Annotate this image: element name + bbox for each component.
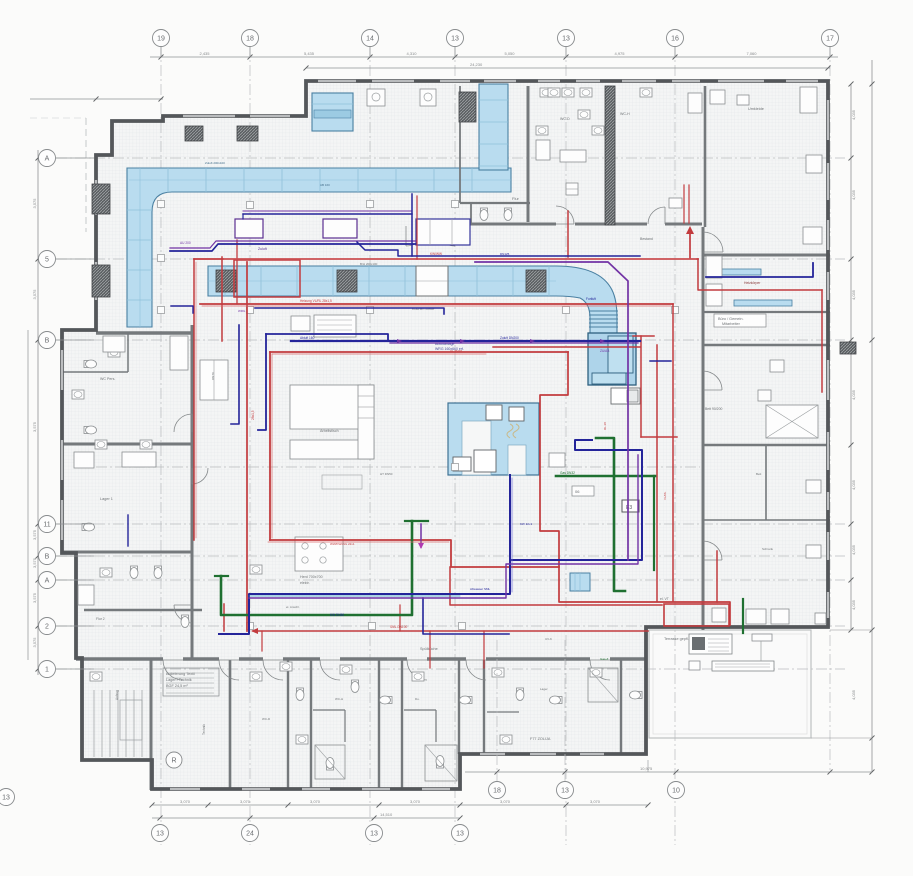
svg-text:5: 5 [45, 256, 49, 263]
svg-text:5,050: 5,050 [505, 51, 516, 56]
svg-text:4,035: 4,035 [851, 599, 856, 610]
svg-text:4,035: 4,035 [851, 289, 856, 300]
svg-text:HT DN50: HT DN50 [380, 472, 393, 476]
svg-text:2: 2 [45, 623, 49, 630]
svg-text:KW DN50: KW DN50 [330, 613, 344, 617]
svg-text:Umkleide: Umkleide [748, 107, 764, 111]
svg-text:4,310: 4,310 [407, 51, 418, 56]
svg-text:Zuluft: Zuluft [258, 247, 267, 251]
svg-text:F90: F90 [610, 202, 616, 206]
svg-text:WRG: WRG [238, 309, 246, 313]
svg-text:3,070: 3,070 [310, 799, 321, 804]
svg-text:Heizkörper: Heizkörper [744, 281, 761, 285]
svg-text:4,035: 4,035 [851, 389, 856, 400]
svg-text:3,575: 3,575 [32, 421, 37, 432]
svg-text:Heizung VL/RL 28x1,5: Heizung VL/RL 28x1,5 [300, 299, 332, 303]
svg-text:Bett 90/200: Bett 90/200 [705, 407, 722, 411]
svg-text:B: B [45, 337, 50, 344]
svg-text:4,035: 4,035 [851, 109, 856, 120]
svg-text:A: A [45, 155, 50, 162]
svg-text:WW/KW/Zirk 22x1: WW/KW/Zirk 22x1 [330, 542, 355, 546]
svg-text:4,035: 4,035 [851, 689, 856, 700]
svg-text:Terrasse gepfl.: Terrasse gepfl. [664, 637, 689, 641]
svg-text:Aufzug: Aufzug [115, 690, 119, 700]
svg-text:AB 160: AB 160 [320, 183, 330, 187]
svg-text:VL 35/28: VL 35/28 [450, 349, 462, 353]
svg-text:VL/RL: VL/RL [663, 491, 667, 500]
svg-text:13: 13 [370, 830, 378, 837]
svg-text:SML DN100: SML DN100 [390, 625, 407, 629]
svg-text:3,575: 3,575 [32, 289, 37, 300]
svg-text:el. VT: el. VT [660, 597, 669, 601]
svg-text:24,230: 24,230 [470, 62, 483, 67]
svg-text:1: 1 [45, 666, 49, 673]
svg-text:Du.: Du. [415, 697, 420, 701]
svg-text:16: 16 [671, 35, 679, 42]
svg-text:Schrank: Schrank [762, 547, 774, 551]
svg-text:17: 17 [826, 35, 834, 42]
svg-text:E3: E3 [626, 505, 632, 511]
svg-text:3,575: 3,575 [32, 557, 37, 568]
svg-text:Arbeitstisch: Arbeitstisch [320, 429, 339, 433]
svg-text:Zuluft 200x100: Zuluft 200x100 [205, 161, 225, 165]
svg-text:2,435: 2,435 [200, 51, 211, 56]
svg-text:WC Pers.: WC Pers. [100, 377, 115, 381]
svg-text:4,975: 4,975 [615, 51, 626, 56]
svg-text:elektr.: elektr. [300, 581, 310, 585]
svg-text:AU 200: AU 200 [180, 241, 191, 245]
svg-text:Gas-Z: Gas-Z [600, 657, 609, 661]
svg-text:WC-H: WC-H [620, 112, 630, 116]
svg-text:A: A [45, 577, 50, 584]
svg-text:14: 14 [366, 35, 374, 42]
svg-text:Lager / Technik: Lager / Technik [166, 678, 192, 682]
svg-text:18: 18 [246, 35, 254, 42]
svg-text:Anlieferung Textil: Anlieferung Textil [166, 672, 195, 676]
svg-text:Gas DN32: Gas DN32 [560, 471, 575, 475]
svg-text:UV-K: UV-K [545, 637, 552, 641]
svg-text:3,070: 3,070 [410, 799, 421, 804]
svg-text:DN70: DN70 [211, 372, 215, 380]
svg-text:13: 13 [562, 35, 570, 42]
svg-text:Bestand: Bestand [640, 237, 653, 241]
svg-text:4,035: 4,035 [851, 544, 856, 555]
svg-text:Zuluft DN200: Zuluft DN200 [500, 336, 519, 340]
svg-text:Flur 2: Flur 2 [96, 617, 105, 621]
svg-text:KW/WW: KW/WW [430, 252, 442, 256]
svg-text:el. Anschl.: el. Anschl. [286, 605, 300, 609]
svg-text:5,435: 5,435 [304, 51, 315, 56]
svg-text:B: B [45, 553, 50, 560]
svg-text:19: 19 [157, 35, 165, 42]
svg-text:13: 13 [2, 794, 10, 801]
svg-text:Spülküche: Spülküche [420, 647, 438, 651]
svg-text:F77 ZOLIJA: F77 ZOLIJA [530, 737, 551, 741]
svg-text:KW 22x1: KW 22x1 [520, 522, 533, 526]
svg-text:11: 11 [43, 521, 50, 528]
svg-text:3,070: 3,070 [500, 799, 511, 804]
svg-text:DN125: DN125 [500, 252, 510, 256]
svg-text:13: 13 [561, 787, 569, 794]
svg-text:Abluft 160: Abluft 160 [300, 336, 315, 340]
svg-text:10: 10 [672, 787, 680, 794]
svg-text:RL 28: RL 28 [603, 422, 607, 430]
svg-text:28x1,5: 28x1,5 [251, 410, 255, 420]
svg-text:06: 06 [575, 489, 580, 494]
svg-text:Abwasser SML: Abwasser SML [470, 587, 491, 591]
svg-text:3,575: 3,575 [32, 592, 37, 603]
svg-text:Herd 700x700: Herd 700x700 [300, 575, 323, 579]
svg-text:10,975: 10,975 [640, 766, 653, 771]
svg-text:Lager 1: Lager 1 [100, 497, 113, 501]
svg-text:13: 13 [156, 830, 164, 837]
svg-text:3,575: 3,575 [32, 529, 37, 540]
svg-text:7,060: 7,060 [747, 51, 758, 56]
svg-text:Mitarbeiter: Mitarbeiter [722, 322, 741, 326]
svg-text:B/H 200x100: B/H 200x100 [360, 262, 378, 266]
svg-text:24: 24 [246, 830, 254, 837]
svg-text:Flur: Flur [512, 196, 520, 201]
svg-text:3,070: 3,070 [590, 799, 601, 804]
svg-text:Büro / Gemein.: Büro / Gemein. [718, 317, 744, 321]
svg-text:3,070: 3,070 [180, 799, 191, 804]
svg-text:3,070: 3,070 [240, 799, 251, 804]
svg-text:Fortluft: Fortluft [586, 297, 596, 301]
svg-text:3,575: 3,575 [32, 198, 37, 209]
svg-text:Bett: Bett [756, 472, 762, 476]
svg-text:13: 13 [451, 35, 459, 42]
svg-text:ZU/AB: ZU/AB [600, 349, 609, 353]
svg-text:4,035: 4,035 [851, 189, 856, 200]
svg-text:13: 13 [456, 830, 464, 837]
svg-text:WC-H: WC-H [335, 697, 343, 701]
svg-text:WC-D: WC-D [262, 717, 271, 721]
svg-text:3,575: 3,575 [32, 637, 37, 648]
svg-text:Lager: Lager [540, 687, 548, 691]
svg-text:18: 18 [493, 787, 501, 794]
svg-text:BGF 24,5 m²: BGF 24,5 m² [166, 684, 188, 688]
svg-text:Technik: Technik [202, 724, 206, 735]
svg-text:4,035: 4,035 [851, 479, 856, 490]
svg-text:R: R [171, 757, 176, 764]
svg-text:14,510: 14,510 [380, 812, 393, 817]
svg-text:WC-D: WC-D [560, 117, 570, 121]
